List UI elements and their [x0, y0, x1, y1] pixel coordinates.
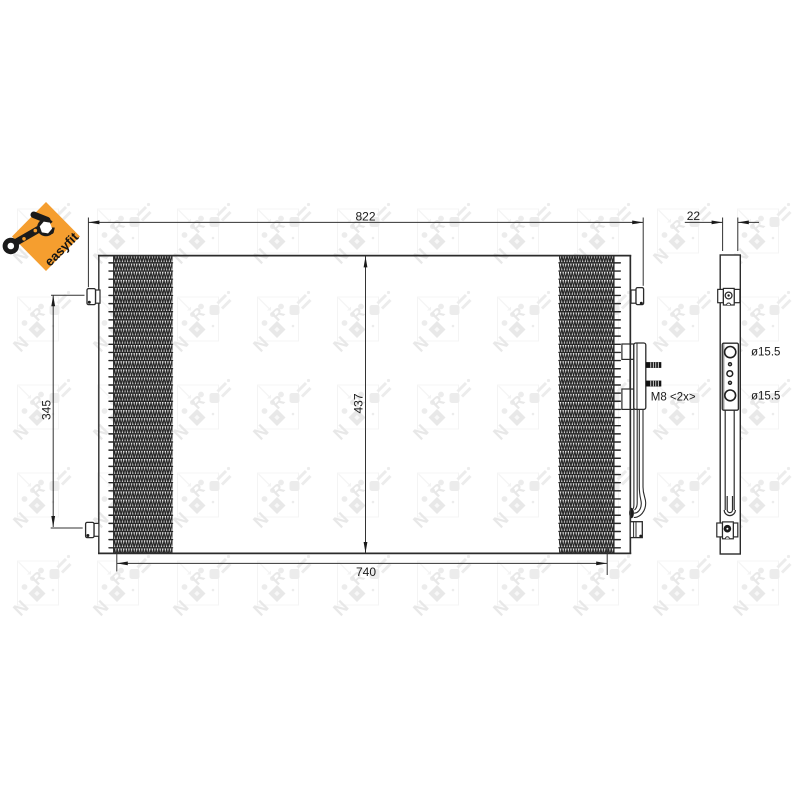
svg-text:ø15.5: ø15.5 — [751, 347, 780, 359]
svg-text:ø15.5: ø15.5 — [751, 390, 780, 402]
svg-text:M8 <2x>: M8 <2x> — [651, 392, 696, 404]
svg-text:740: 740 — [356, 565, 376, 579]
svg-text:822: 822 — [356, 209, 376, 223]
svg-text:22: 22 — [687, 209, 701, 223]
svg-text:437: 437 — [351, 393, 365, 413]
svg-text:345: 345 — [40, 400, 54, 420]
